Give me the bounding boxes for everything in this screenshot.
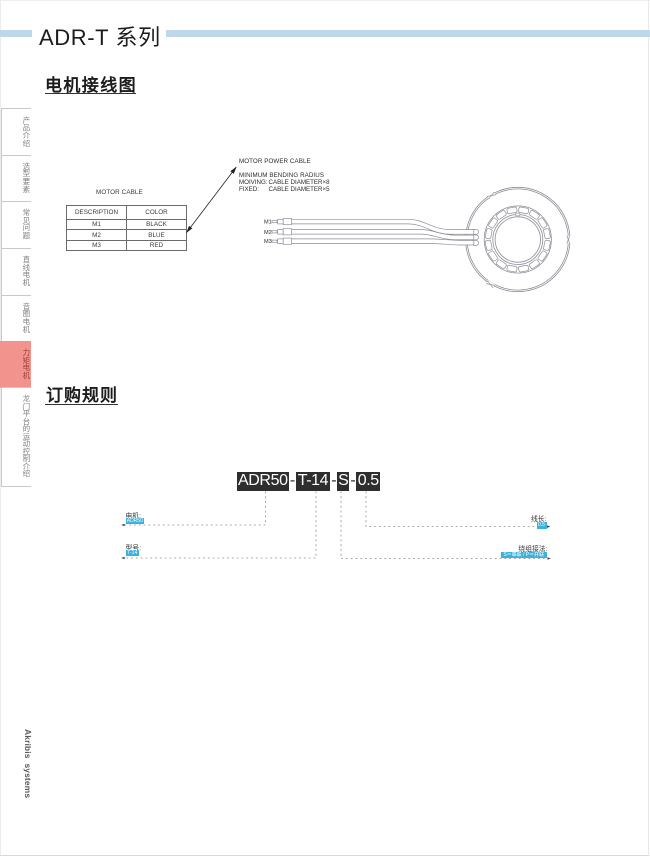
svg-text:M3: M3 bbox=[264, 239, 272, 245]
svg-text:M2: M2 bbox=[264, 230, 272, 236]
svg-text:M1: M1 bbox=[264, 220, 272, 226]
